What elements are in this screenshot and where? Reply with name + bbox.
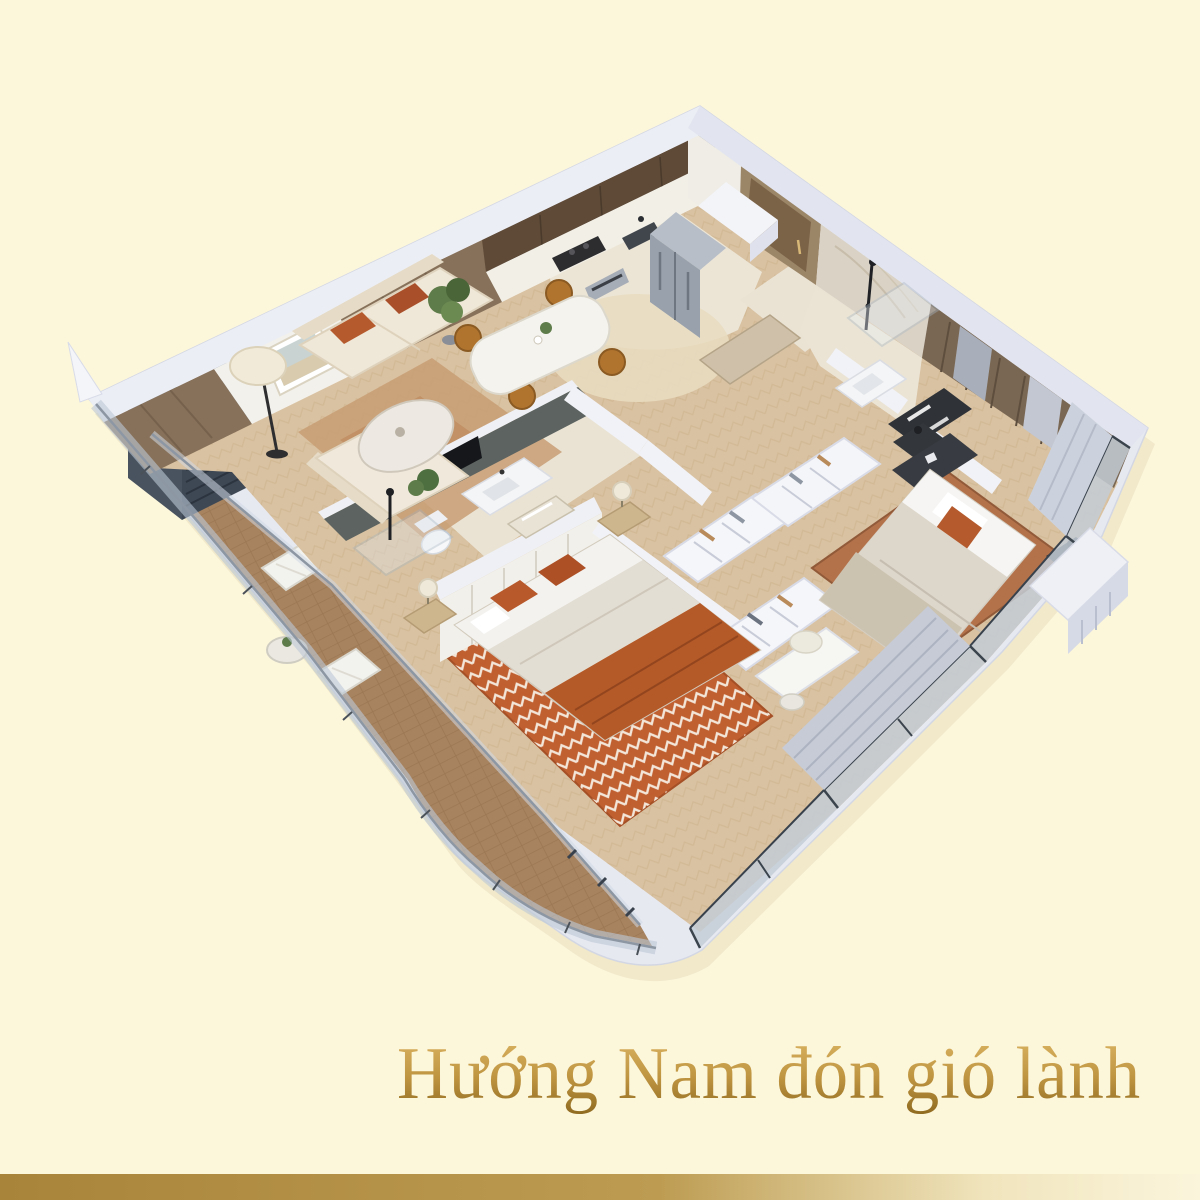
table-decor: [395, 427, 405, 437]
table-vase: [534, 336, 542, 344]
table-plant: [540, 322, 552, 334]
table-lamp-3: [419, 579, 437, 597]
caption-title: Hướng Nam đón gió lành: [397, 1033, 1141, 1115]
table-lamp-4: [613, 482, 631, 500]
dining-chair: [599, 349, 625, 375]
desk-stool: [780, 694, 804, 710]
bedroom-pouf: [790, 631, 822, 653]
floor-plan-scene: Hướng Nam đón gió lành: [0, 0, 1200, 1200]
faucet: [638, 216, 644, 222]
gold-footer-bar: [0, 1174, 1200, 1200]
table-lamp: [914, 426, 922, 434]
page: Hướng Nam đón gió lành: [0, 0, 1200, 1200]
